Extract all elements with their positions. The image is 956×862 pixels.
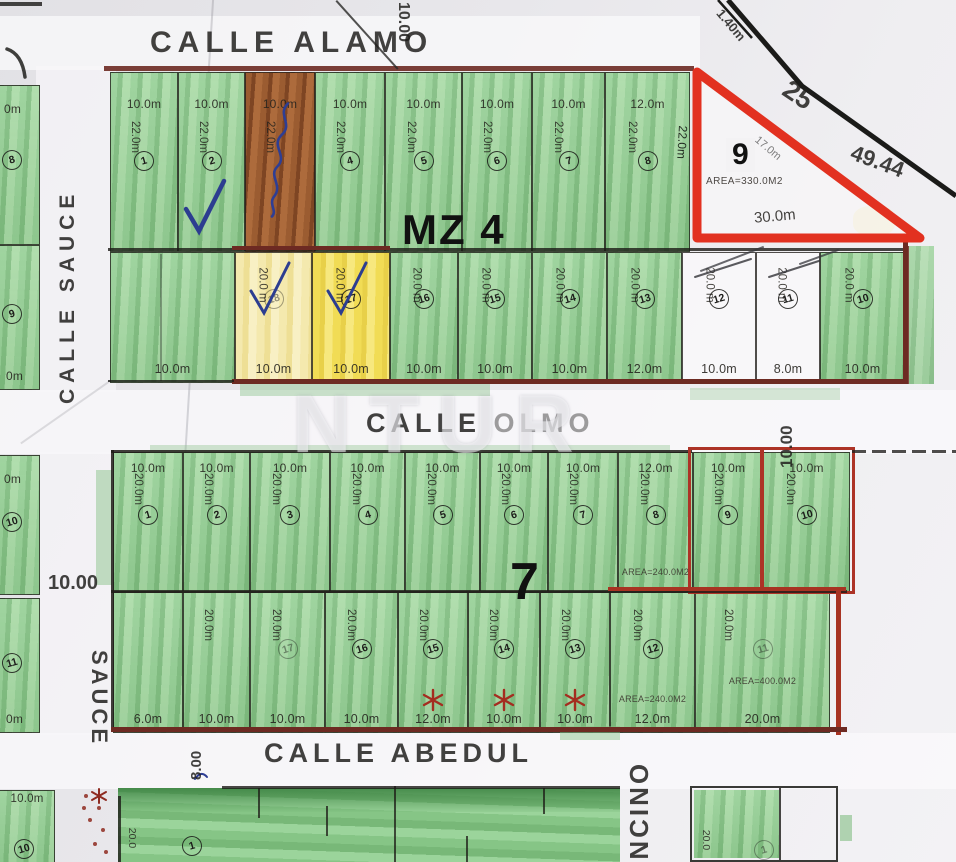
lot-number: 11 [0,651,24,676]
b7-red-frame [688,447,855,594]
lot-width-label: 10.0m [0,793,54,805]
lot-depth-label: 20.0m [270,473,282,505]
lot-b7-12: 12.0m20.0m12AREA=240.0M2 [610,592,695,733]
lot-depth-label: 20.0m [350,473,362,505]
lot9-red-triangle [680,55,956,255]
lot-b7-row2-0: 6.0m [113,592,183,733]
street-width-right: 10.00 [777,425,797,468]
lot-mz4-18: 10.0m20.0 m18 [235,252,312,383]
lot-number: 2 [204,503,229,528]
lot-width-label: 20.0m [696,712,829,726]
handwritten-note-scribble [260,98,300,220]
lot-width-label: 10.0m [251,712,324,726]
block-border-left [118,796,121,862]
lot-mz4-8: 12.0m22.0m8 [605,72,690,252]
cut-line-top-left [0,2,42,6]
lot-area-label: AREA=240.0M2 [611,694,694,704]
bottom-left-block: 1 20.0 [118,788,620,862]
red-ink-speck [88,818,92,822]
lot-depth-label: 22.0m [405,121,417,153]
lot-width-label: 10.0m [386,97,461,111]
red-ink-speck [93,842,97,846]
lot-depth-label: 20.0m [559,609,571,641]
lot-number: 7 [571,503,596,528]
red-star-icon [90,787,108,805]
lot-width-label: 10.0m [184,712,249,726]
lot-depth-label: 20.0m [631,609,643,641]
lot-depth-label: 22.0m [626,121,638,153]
red-star-icon [421,688,445,712]
lot-b7-14: 10.0m20.0m14 [468,592,540,733]
lot-mz4-row2-0: 10.0m [110,252,235,383]
lot-left-8: 0m8 [0,85,40,245]
lot-divider [258,788,260,818]
lot-b7-13: 10.0m20.0m13 [540,592,610,733]
lot9-front-dim: 30.0m [753,206,796,227]
lot-b7-1: 10.0m20.0m1 [113,452,183,592]
marker-smudge [96,470,112,585]
lot-depth-label: 20.0 [126,828,138,848]
lot-width-label: 10.0m [114,461,182,475]
lot-b7-4: 10.0m20.0m4 [330,452,405,592]
lot-left-10: 0m10 [0,455,40,595]
lot-mz4-11: 8.0m20.0 m11 [756,252,820,383]
lot-width-label: 10.0m [541,712,609,726]
lot-width-label: 10.0m [111,362,234,376]
red-ink-speck [82,806,86,810]
lot-depth-label: 20.0m [270,609,282,641]
bottom-right-block: 20.0 1 [690,786,838,862]
lot-number: 3 [278,503,303,528]
lot-mz4-16: 10.0m20.0 m16 [390,252,458,383]
lot-depth-label: 22.0m [552,121,564,153]
lot-width-label: 12.0m [399,712,467,726]
lot-width-label: 10.0m [236,362,311,376]
red-ink-speck [101,828,105,832]
lot-width-label: 10.0m [821,362,904,376]
lot-number: 8 [0,148,24,173]
mz4-border-right [903,236,908,383]
check-mark-icon [244,257,296,319]
lot-divider [394,786,396,862]
lot-mz4-row1-2: 10.0m22.0m [245,72,315,252]
lot-b7-7: 10.0m20.0m7 [548,452,618,592]
lot-number: 10 [0,510,24,535]
lot-depth-label: 20 [0,837,2,849]
lot-width-label: 10.0m [313,362,389,376]
lot-number: 8 [635,149,660,174]
lot-width-label: 10.0m [326,712,397,726]
mz4-border-bottom-left [108,380,234,382]
check-mark-icon [179,175,231,237]
lot-depth-label: 20.0m [425,473,437,505]
lot-depth-label: 20.0m [417,609,429,641]
lot-b7-5: 10.0m20.0m5 [405,452,480,592]
lot-number: 4 [355,503,380,528]
lot-depth-label: 22.0m [197,121,209,153]
street-width-top: 10.00 [394,2,412,42]
mz4-border-maroon [232,246,390,250]
lot-depth-label: 20.0m [499,473,511,505]
lot-width-label: 12.0m [611,712,694,726]
pen-slash-icon [689,255,759,281]
lot-width-label: 10.0m [469,712,539,726]
lot-depth-label: 20.0m [487,609,499,641]
lot-width-label: 10.0m [391,362,457,376]
lot-width-label: 10.0m [316,97,384,111]
lot-width-label: 10.0m [533,362,606,376]
green-strip-right [906,246,934,384]
block-label-mz4: MZ 4 [402,206,506,254]
lot-width-label: 10.0m [459,362,531,376]
red-ink-speck [97,806,101,810]
lot-mz4-2: 10.0m22.0m2 [178,72,245,252]
lot-width-label: 12.0m [606,97,689,111]
lot-b7-2: 10.0m20.0m2 [183,452,250,592]
street-name-bottom: CALLE ABEDUL [264,738,533,769]
lot-width-label: 6.0m [114,712,182,726]
lot-area-label: AREA=400.0M2 [696,676,829,686]
lot-divider [466,836,468,862]
lot-width-label: 8.0m [757,362,819,376]
lot-mz4-15: 10.0m20.0 m15 [458,252,532,383]
watermark: NTUR [292,378,592,472]
lot-b7-3: 10.0m20.0m3 [250,452,330,592]
lot-depth-label: 20.0m [722,609,734,641]
lot-width-label: 10.0m [533,97,604,111]
lot-number: 1 [136,503,161,528]
lot-mz4-1: 10.0m22.0m1 [110,72,178,252]
lot-divider [779,788,781,860]
lot-depth-label: 22.0m [334,121,346,153]
red-ink-speck [104,850,108,854]
lot-b7-row2-1: 10.0m20.0m [183,592,250,733]
lot-width-label: 0m [0,712,39,726]
lot-depth-label: 20.0m [132,473,144,505]
block-label-7: 7 [510,552,539,612]
lot-width-label: 10.0m [683,362,755,376]
lot-left-11: 0m11 [0,598,40,733]
red-star-icon [563,688,587,712]
map-root: CALLE ALAMO CALLE OLMO CALLE ABEDUL CALL… [0,0,956,862]
street-line-right [852,450,956,453]
mz4-faint-divider [160,254,162,381]
street-width-bottom: 8.00 [188,751,205,780]
street-name-left-lower: SAUCE [86,650,112,747]
b7-red-right [836,587,841,735]
lot-width-label: 0m [0,369,39,383]
lot-width-label: 10.0m [179,97,244,111]
lot-number: 11 [750,637,775,662]
lot-b7-16: 10.0m20.0m16 [325,592,398,733]
lot-divider [543,788,545,814]
lot-width-label: 10.0m [111,97,177,111]
street-name-top: CALLE ALAMO [150,26,433,60]
red-ink-speck [84,794,88,798]
lot-b7-8: 12.0m20.0m8AREA=240.0M2 [618,452,693,592]
lot-number: 12 [640,637,665,662]
lot-area-label: AREA=240.0M2 [619,567,692,577]
lot-mz4-4: 10.0m22.0m4 [315,72,385,252]
lot-mz4-13: 12.0m20.0 m13 [607,252,682,383]
lot9-side-dim: 22.0m [674,125,690,159]
b7-red-divider [760,450,764,592]
lot-width-label: 10.0m [463,97,531,111]
red-star-icon [492,688,516,712]
lot-number: 1 [180,834,205,859]
street-name-right-lower: ENCINO [624,761,655,862]
lot-width-label: 10.0m [184,461,249,475]
lot-depth-label: 22.0m [129,121,141,153]
lot-mz4-10: 10.0m20.0 m10 [820,252,905,383]
lot-depth-label: 20.0m [567,473,579,505]
lot-bottom-left-corner: 10.0m 10 20 [0,790,55,862]
lot-depth-label: 22.0m [481,121,493,153]
lot-depth-label: 20.0 [700,830,712,850]
lot-mz4-12: 10.0m20.0 m12 [682,252,756,383]
lot-width-label: 0m [0,472,39,486]
lot-b7-15: 12.0m20.0m15 [398,592,468,733]
block-border-top [222,786,620,789]
lot9-area-label: AREA=330.0M2 [706,176,783,187]
lot-number: 5 [430,503,455,528]
mz4-border-top [104,66,694,71]
lot-mz4-7: 10.0m22.0m7 [532,72,605,252]
lot-number: 8 [643,503,668,528]
pen-squiggle-corner [2,44,34,82]
lot-number: 10 [12,837,37,862]
b7-border-bottom [111,727,847,732]
lot9-number: 9 [726,138,755,172]
lot-width-label: 0m [0,102,39,116]
lot-width-label: 12.0m [619,461,692,475]
lot-mz4-14: 10.0m20.0 m14 [532,252,607,383]
lot-mz4-17: 10.0m20.0 m17 [312,252,390,383]
lot-divider [326,806,328,836]
marker-smudge [690,388,840,400]
lot-b7-17: 10.0m20.0m17 [250,592,325,733]
lot-number: 9 [0,302,24,327]
lot-depth-label: 20.0m [202,609,214,641]
lot-depth-label: 20.0m [638,473,650,505]
street-name-left-upper: CALLE SAUCE [56,189,80,404]
lot-depth-label: 20.0m [202,473,214,505]
street-width-left: 10.00 [48,572,98,595]
lot-number: 6 [502,503,527,528]
lot-left-9: 0m9 [0,245,40,390]
lot-depth-label: 20.0m [345,609,357,641]
lot-width-label: 12.0m [608,362,681,376]
check-mark-icon [321,257,373,319]
b7-red-divider2 [608,587,846,591]
marker-smudge [840,815,852,841]
lot-b7-11: 20.0m20.0m11AREA=400.0M2 [695,592,830,733]
